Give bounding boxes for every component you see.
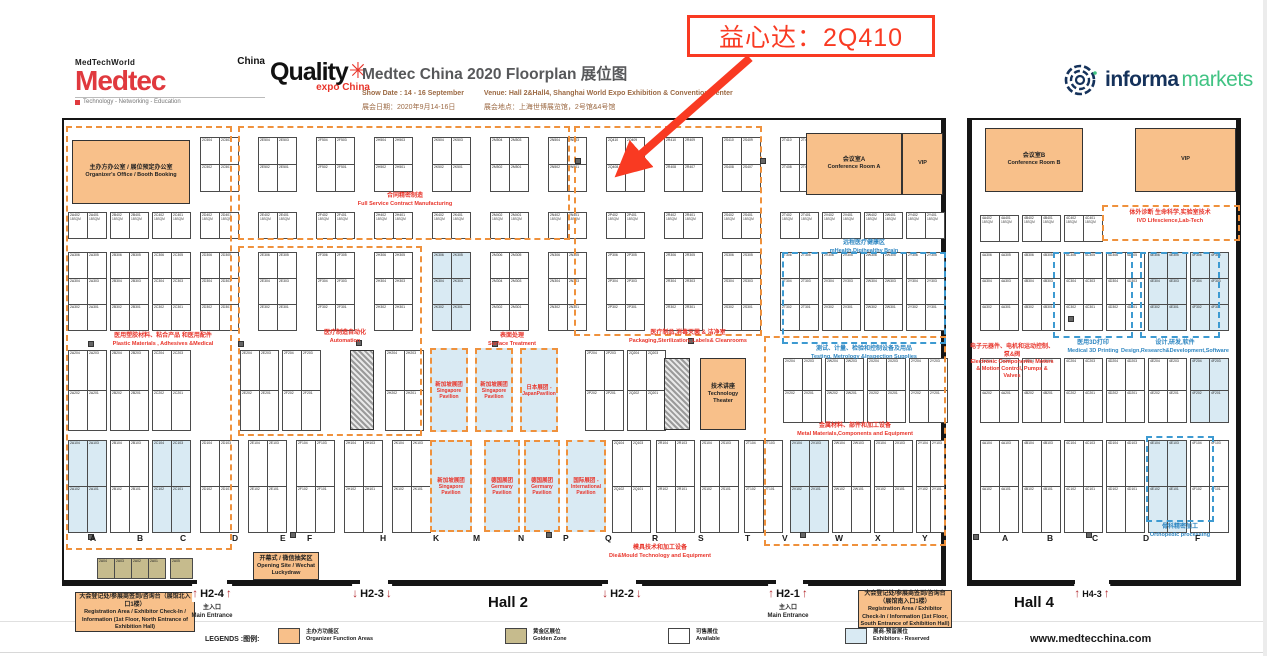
- legend-label: 主办方功能区Organizer Function Areas: [306, 629, 373, 643]
- booth-2M503: 2M503: [509, 137, 529, 165]
- feature-conference-room-b: 会议室BConference Room B: [985, 128, 1083, 192]
- booth-2V204: 2V204: [783, 358, 803, 391]
- booth-2H301: 2H301: [393, 304, 413, 331]
- booth-2B303: 2B303: [129, 278, 149, 305]
- booth-2E303: 2E303: [277, 278, 297, 305]
- booth-2S302: 2S302: [722, 304, 742, 331]
- hall-wall: [1236, 118, 1241, 586]
- quality-expo-logo: Quality ✳ expo China: [270, 60, 370, 93]
- booth-2T305: 2T305: [799, 252, 819, 279]
- booth-4B306: 4B306: [1022, 252, 1042, 279]
- booth-2V202: 2V202: [783, 390, 803, 423]
- zone-label: 医疗制品,消毒灭菌 & 洁净室Packaging,Sterilization, …: [623, 330, 753, 344]
- booth-2A04: 2A04: [97, 558, 115, 579]
- booth-2D304: 2D304: [200, 278, 220, 305]
- booth-2K302: 2K302: [432, 304, 452, 331]
- zone-label: 体外诊断 生命科学,实验室技术IVD Lifescience,Lab-Tech: [1110, 210, 1230, 224]
- booth-2E306: 2E306: [258, 252, 278, 279]
- booth-2E402: 2E40218SQM: [258, 212, 278, 239]
- legend-item: 黄金区展位Golden Zone: [505, 628, 567, 644]
- booth-2P201: 2P201: [604, 390, 624, 431]
- booth-2C502: 2C502: [200, 164, 220, 192]
- hall-wall: [803, 580, 946, 586]
- booth-2F401: 2F40118SQM: [335, 212, 355, 239]
- markets-text: markets: [1182, 68, 1253, 91]
- hatched-block: [664, 358, 690, 430]
- booth-2A204: 2A204: [68, 350, 88, 391]
- informa-swirl-icon: [1062, 62, 1098, 98]
- booth-4F204: 4F204: [1190, 358, 1210, 391]
- booth-2D103: 2D103: [219, 440, 239, 487]
- column-letter-V: V: [782, 533, 788, 543]
- booth-2H304: 2H304: [374, 278, 394, 305]
- booth-2D303: 2D303: [219, 278, 239, 305]
- booth-4C104: 4C104: [1064, 440, 1084, 487]
- booth-2E302: 2E302: [258, 304, 278, 331]
- booth-4C204: 4C204: [1064, 358, 1084, 391]
- booth-2K101: 2K101: [411, 486, 431, 533]
- booth-2T301: 2T301: [799, 304, 819, 331]
- pillar: [290, 532, 296, 538]
- booth-2W303: 2W303: [883, 278, 903, 305]
- booth-4D203: 4D203: [1125, 358, 1145, 391]
- hall-label: Hall 2: [488, 594, 528, 611]
- booth-2B102: 2B102: [110, 486, 130, 533]
- pillar: [760, 158, 766, 164]
- booth-2K104: 2K104: [392, 440, 412, 487]
- booth-2C303: 2C303: [171, 278, 191, 305]
- booth-2F203: 2F203: [301, 350, 321, 391]
- booth-2H202: 2H202: [385, 390, 405, 431]
- booth-2F504: 2F504: [316, 137, 336, 165]
- main-entrance-label: 主入口Main Entrance: [767, 604, 808, 621]
- booth-2E103: 2E103: [267, 440, 287, 487]
- booth-2Y303: 2Y303: [925, 278, 945, 305]
- booth-2Y305: 2Y305: [925, 252, 945, 279]
- booth-2Y104: 2Y104: [916, 440, 931, 487]
- booth-2Q204: 2Q204: [627, 350, 647, 391]
- booth-4D302: 4D302: [1106, 304, 1126, 331]
- hall-label: Hall 4: [1014, 594, 1054, 611]
- booth-2Y202: 2Y202: [909, 390, 929, 423]
- booth-4B401: 4B40118SQM: [1041, 215, 1061, 242]
- venue-cn: 展会地点：上海世博展览馆，2号馆&4号馆: [484, 102, 733, 112]
- booth-2N501: 2N501: [567, 164, 587, 192]
- column-letter-Y: Y: [922, 533, 928, 543]
- booth-2E305: 2E305: [277, 252, 297, 279]
- booth-4E304: 4E304: [1148, 278, 1168, 305]
- medtec-china-text: China: [237, 56, 265, 67]
- booth-2H503: 2H503: [393, 137, 413, 165]
- booth-2Q410: 2Q410: [606, 137, 626, 165]
- column-letter-A: A: [1002, 533, 1008, 543]
- booth-2W302: 2W302: [864, 304, 884, 331]
- entrance-H2-3: ↓H2-3↓: [352, 584, 392, 602]
- booth-2B202: 2B202: [110, 390, 130, 431]
- booth-2H104: 2H104: [344, 440, 364, 487]
- booth-4A305: 4A305: [999, 252, 1019, 279]
- column-letter-D: D: [1143, 533, 1149, 543]
- legend-label: 可售展位Available: [696, 629, 720, 643]
- booth-2A103: 2A103: [87, 440, 107, 487]
- booth-4A401: 4A40118SQM: [999, 215, 1019, 242]
- hall-wall: [62, 118, 64, 583]
- booth-2C102: 2C102: [152, 486, 172, 533]
- hall-wall: [1109, 580, 1241, 586]
- column-letter-D: D: [232, 533, 238, 543]
- booth-2X104: 2X104: [874, 440, 894, 487]
- booth-2A202: 2A202: [68, 390, 88, 431]
- booth-2W301: 2W301: [883, 304, 903, 331]
- booth-2M504: 2M504: [490, 137, 510, 165]
- pavilion: 新加坡展团Singapore Pavilion: [430, 348, 468, 432]
- column-letter-M: M: [473, 533, 480, 543]
- entrance-H2-2: ↓H2-2↓: [602, 584, 642, 602]
- booth-2M501: 2M501: [509, 164, 529, 192]
- pillar: [575, 158, 581, 164]
- booth-2E204: 2E204: [240, 350, 260, 391]
- booth-2E504: 2E504: [258, 137, 278, 165]
- zone-label: 合同精密制造Full Service Contract Manufacturin…: [305, 193, 505, 207]
- booth-2S103: 2S103: [719, 440, 739, 487]
- booth-4A202: 4A202: [980, 390, 1000, 423]
- booth-2A104: 2A104: [68, 440, 88, 487]
- pillar: [800, 532, 806, 538]
- booth-2K306: 2K306: [432, 252, 452, 279]
- booth-2B203: 2B203: [129, 350, 149, 391]
- feature-organizer-office: 主办方办公室 / 展位预定办公室Organizer's Office / Boo…: [72, 140, 190, 204]
- booth-4C101: 4C101: [1083, 486, 1103, 533]
- zone-label: 医用塑胶材料、粘合产品 和医用配件Plastic Materials , Adh…: [73, 333, 253, 347]
- booth-2H103: 2H103: [363, 440, 383, 487]
- booth-2V203: 2V203: [802, 358, 822, 391]
- booth-2D302: 2D302: [200, 304, 220, 331]
- booth-2R301: 2R301: [683, 304, 703, 331]
- booth-2K102: 2K102: [392, 486, 412, 533]
- zone-label: 表面处理Surface Treatment: [462, 333, 562, 347]
- booth-2T104: 2T104: [744, 440, 764, 487]
- booth-2W103: 2W103: [851, 440, 871, 487]
- booth-2F303: 2F303: [335, 278, 355, 305]
- booth-2E101: 2E101: [267, 486, 287, 533]
- booth-2R304: 2R304: [664, 278, 684, 305]
- booth-2V306: 2V306: [822, 252, 842, 279]
- informa-markets-logo: informamarkets: [1062, 62, 1253, 98]
- booth-2C306: 2C306: [152, 252, 172, 279]
- booth-2Q408: 2Q408: [606, 164, 626, 192]
- booth-4C401: 4C40118SQM: [1083, 215, 1103, 242]
- booth-2F101: 2F101: [315, 486, 335, 533]
- booth-2V301: 2V301: [841, 304, 861, 331]
- booth-2V402: 2V40218SQM: [822, 212, 842, 239]
- feature-vip-hall2: VIP: [902, 133, 943, 195]
- booth-4C305: 4C305: [1083, 252, 1103, 279]
- booth-2M303: 2M303: [509, 278, 529, 305]
- booth-2M401: 2M40118SQM: [509, 212, 529, 239]
- booth-2F402: 2F40218SQM: [316, 212, 336, 239]
- booth-2W201: 2W201: [844, 390, 864, 423]
- booth-2Q203: 2Q203: [646, 350, 666, 391]
- booth-2P301: 2P301: [625, 304, 645, 331]
- booth-2Q102: 2Q102: [612, 486, 632, 533]
- legend-item: 可售展位Available: [668, 628, 720, 644]
- booth-4C306: 4C306: [1064, 252, 1084, 279]
- pavilion: 德国展团Germany Pavilion: [484, 440, 520, 532]
- booth-2Y103: 2Y103: [930, 440, 945, 487]
- booth-2V305: 2V305: [841, 252, 861, 279]
- column-letter-S: S: [698, 533, 704, 543]
- booth-2T304: 2T304: [780, 278, 800, 305]
- booth-2P202: 2P202: [585, 390, 605, 431]
- booth-2W305: 2W305: [883, 252, 903, 279]
- booth-2A306: 2A306: [68, 252, 88, 279]
- pavilion: 新加坡展团Singapore Pavilion: [430, 440, 472, 532]
- venue-en: Venue: Hall 2&Hall4, Shanghai World Expo…: [484, 90, 733, 97]
- booth-2B402: 2B40218SQM: [110, 212, 130, 239]
- booth-2T401: 2T40118SQM: [799, 212, 819, 239]
- medtec-tagline: Technology - Networking - Education: [75, 97, 265, 105]
- booth-2Y102: 2Y102: [916, 486, 931, 533]
- booth-2C501: 2C501: [219, 164, 239, 192]
- booth-2K504: 2K504: [432, 137, 452, 165]
- booth-2Y201: 2Y201: [928, 390, 948, 423]
- booth-2T302: 2T302: [780, 304, 800, 331]
- booth-2S410: 2S410: [722, 137, 742, 165]
- booth-4F305: 4F305: [1209, 252, 1229, 279]
- booth-2H504: 2H504: [374, 137, 394, 165]
- booth-2H101: 2H101: [363, 486, 383, 533]
- booth-4B302: 4B302: [1022, 304, 1042, 331]
- booth-2R103: 2R103: [675, 440, 695, 487]
- booth-2S102: 2S102: [700, 486, 720, 533]
- booth-4D103: 4D103: [1125, 440, 1145, 487]
- column-letter-T: T: [745, 533, 750, 543]
- booth-2H401: 2H40118SQM: [393, 212, 413, 239]
- booth-2A02: 2A02: [131, 558, 149, 579]
- booth-2T101: 2T101: [763, 486, 783, 533]
- booth-4C303: 4C303: [1083, 278, 1103, 305]
- booth-2X203: 2X203: [886, 358, 906, 391]
- booth-4E303: 4E303: [1167, 278, 1187, 305]
- medtec-logo: MedTechWorld China Medtec Technology - N…: [75, 56, 265, 105]
- booth-2X103: 2X103: [893, 440, 913, 487]
- booth-2M301: 2M301: [509, 304, 529, 331]
- booth-2N303: 2N303: [567, 278, 587, 305]
- pillar: [1068, 316, 1074, 322]
- column-letter-F: F: [307, 533, 312, 543]
- column-letter-F: F: [1195, 533, 1200, 543]
- booth-2F502: 2F502: [316, 164, 336, 192]
- booth-2R102: 2R102: [656, 486, 676, 533]
- booth-4B201: 4B201: [1041, 390, 1061, 423]
- entrance-H4-3: ↑H4-3↑: [1074, 584, 1110, 602]
- booth-2Y301: 2Y301: [925, 304, 945, 331]
- booth-4B104: 4B104: [1022, 440, 1042, 487]
- booth-2V304: 2V304: [822, 278, 842, 305]
- column-letter-C: C: [1092, 533, 1098, 543]
- booth-2R302: 2R302: [664, 304, 684, 331]
- booth-2B304: 2B304: [110, 278, 130, 305]
- legend-swatch: [505, 628, 527, 644]
- booth-2F102: 2F102: [296, 486, 316, 533]
- booth-2E104: 2E104: [248, 440, 268, 487]
- medtec-tagline-text: Technology - Networking - Education: [83, 99, 181, 105]
- booth-2V102: 2V102: [790, 486, 810, 533]
- booth-2F503: 2F503: [335, 137, 355, 165]
- booth-4A201: 4A201: [999, 390, 1019, 423]
- hall-wall: [62, 118, 945, 120]
- hall-wall: [388, 580, 608, 586]
- booth-2N304: 2N304: [548, 278, 568, 305]
- pillar: [973, 534, 979, 540]
- booth-2C202: 2C202: [152, 390, 172, 431]
- hall-wall: [967, 118, 1241, 120]
- booth-2W102: 2W102: [832, 486, 852, 533]
- booth-2Y304: 2Y304: [906, 278, 926, 305]
- booth-2B302: 2B302: [110, 304, 130, 331]
- booth-2H303: 2H303: [393, 278, 413, 305]
- booth-2P203: 2P203: [604, 350, 624, 391]
- booth-2A01: 2A01: [148, 558, 166, 579]
- booth-4C201: 4C201: [1083, 390, 1103, 423]
- booth-4D104: 4D104: [1106, 440, 1126, 487]
- zone-label: 设计,研发,软件Design,Research&Development,Soft…: [1117, 340, 1233, 354]
- booth-2W304: 2W304: [864, 278, 884, 305]
- booth-2S401: 2S40118SQM: [741, 212, 761, 239]
- booth-4C203: 4C203: [1083, 358, 1103, 391]
- booth-4F203: 4F203: [1209, 358, 1229, 391]
- booth-2A101: 2A101: [87, 486, 107, 533]
- booth-4F301: 4F301: [1209, 304, 1229, 331]
- column-letter-Q: Q: [605, 533, 612, 543]
- booth-2P401: 2P40118SQM: [625, 212, 645, 239]
- booth-4D204: 4D204: [1106, 358, 1126, 391]
- legend-swatch: [278, 628, 300, 644]
- booth-2V104: 2V104: [790, 440, 810, 487]
- booth-2T410: 2T410: [780, 137, 800, 165]
- booth-2E202: 2E202: [240, 390, 260, 431]
- booth-4F302: 4F302: [1190, 304, 1210, 331]
- booth-2W306: 2W306: [864, 252, 884, 279]
- booth-4F103: 4F103: [1209, 440, 1229, 487]
- booth-2D401: 2D40118SQM: [219, 212, 239, 239]
- booth-2X202: 2X202: [867, 390, 887, 423]
- booth-2B306: 2B306: [110, 252, 130, 279]
- booth-2P305: 2P305: [625, 252, 645, 279]
- booth-2Q101: 2Q101: [631, 486, 651, 533]
- booth-2F301: 2F301: [335, 304, 355, 331]
- booth-2S305: 2S305: [741, 252, 761, 279]
- booth-2B401: 2B40118SQM: [129, 212, 149, 239]
- booth-2V303: 2V303: [841, 278, 861, 305]
- booth-4B301: 4B301: [1041, 304, 1061, 331]
- booth-2W101: 2W101: [851, 486, 871, 533]
- booth-2R407: 2R407: [683, 164, 703, 192]
- booth-4D304: 4D304: [1106, 278, 1126, 305]
- booth-2W401: 2W40118SQM: [883, 212, 903, 239]
- booth-4F202: 4F202: [1190, 390, 1210, 423]
- zone-label: 模具技术和加工设备Die&Mould Technology and Equipm…: [575, 545, 745, 559]
- zone-label: 金属材料、部件和加工设备Metal Materials,Components a…: [780, 423, 930, 437]
- pavilion: 新加坡展团Singapore Pavilion: [475, 348, 513, 432]
- booth-2Y203: 2Y203: [928, 358, 948, 391]
- booth-2Y306: 2Y306: [906, 252, 926, 279]
- booth-4A104: 4A104: [980, 440, 1000, 487]
- booth-4B102: 4B102: [1022, 486, 1042, 533]
- booth-2F204: 2F204: [282, 350, 302, 391]
- booth-2A303: 2A303: [87, 278, 107, 305]
- booth-2H203: 2H203: [404, 350, 424, 391]
- booth-2M305: 2M305: [509, 252, 529, 279]
- booth-2D102: 2D102: [200, 486, 220, 533]
- booth-2B305: 2B305: [129, 252, 149, 279]
- booth-2F201: 2F201: [301, 390, 321, 431]
- booth-2N502: 2N502: [548, 164, 568, 192]
- booth-2F304: 2F304: [316, 278, 336, 305]
- booth-2E102: 2E102: [248, 486, 268, 533]
- legend-label: 展商-预留展位Exhibitors - Reserved: [873, 629, 930, 643]
- booth-2E301: 2E301: [277, 304, 297, 331]
- booth-2A305: 2A305: [87, 252, 107, 279]
- booth-2R401: 2R40118SQM: [683, 212, 703, 239]
- booth-2R410: 2R410: [664, 137, 684, 165]
- booth-callout-text: 益心达：2Q410: [719, 18, 903, 54]
- booth-2P402: 2P40218SQM: [606, 212, 626, 239]
- booth-2A203: 2A203: [87, 350, 107, 391]
- booth-4E104: 4E104: [1148, 440, 1168, 487]
- booth-4C202: 4C202: [1064, 390, 1084, 423]
- booth-2T102: 2T102: [744, 486, 764, 533]
- booth-2D306: 2D306: [200, 252, 220, 279]
- website-link[interactable]: www.medtecchina.com: [1030, 633, 1151, 645]
- hall-wall: [636, 580, 776, 586]
- booth-2R101: 2R101: [675, 486, 695, 533]
- booth-2B103: 2B103: [129, 440, 149, 487]
- booth-2Q201: 2Q201: [646, 390, 666, 431]
- booth-2R409: 2R409: [683, 137, 703, 165]
- booth-2B104: 2B104: [110, 440, 130, 487]
- booth-4E302: 4E302: [1148, 304, 1168, 331]
- booth-4E305: 4E305: [1167, 252, 1187, 279]
- column-letter-N: N: [518, 533, 524, 543]
- booth-2N402: 2N40218SQM: [548, 212, 568, 239]
- booth-4C304: 4C304: [1064, 278, 1084, 305]
- hatched-block: [350, 350, 374, 430]
- booth-2S306: 2S306: [722, 252, 742, 279]
- column-letter-W: W: [835, 533, 843, 543]
- bottom-border: [0, 652, 1267, 653]
- booth-2C304: 2C304: [152, 278, 172, 305]
- booth-4A402: 4A40218SQM: [980, 215, 1000, 242]
- zone-label: 电子元器件、电机和运动控制、泵&阀Electronic Components, …: [968, 344, 1056, 380]
- column-letter-P: P: [563, 533, 569, 543]
- booth-2S407: 2S407: [741, 164, 761, 192]
- booth-4C301: 4C301: [1083, 304, 1103, 331]
- booth-2E502: 2E502: [258, 164, 278, 192]
- column-letter-A: A: [90, 533, 96, 543]
- feature-registration-north: 大会登记处/参展商签到/咨询台（展馆北入口1楼）Registration Are…: [75, 592, 195, 632]
- feature-conference-room-a: 会议室AConference Room A: [806, 133, 902, 195]
- zone-label: 骨科精密加工Orthopedic processing: [1140, 524, 1220, 538]
- booth-2W104: 2W104: [832, 440, 852, 487]
- booth-2R402: 2R40218SQM: [664, 212, 684, 239]
- booth-2K304: 2K304: [432, 278, 452, 305]
- window-edge: [1263, 0, 1267, 656]
- booth-2K103: 2K103: [411, 440, 431, 487]
- booth-4D301: 4D301: [1125, 304, 1145, 331]
- booth-2E201: 2E201: [259, 390, 279, 431]
- booth-2T408: 2T408: [780, 164, 800, 192]
